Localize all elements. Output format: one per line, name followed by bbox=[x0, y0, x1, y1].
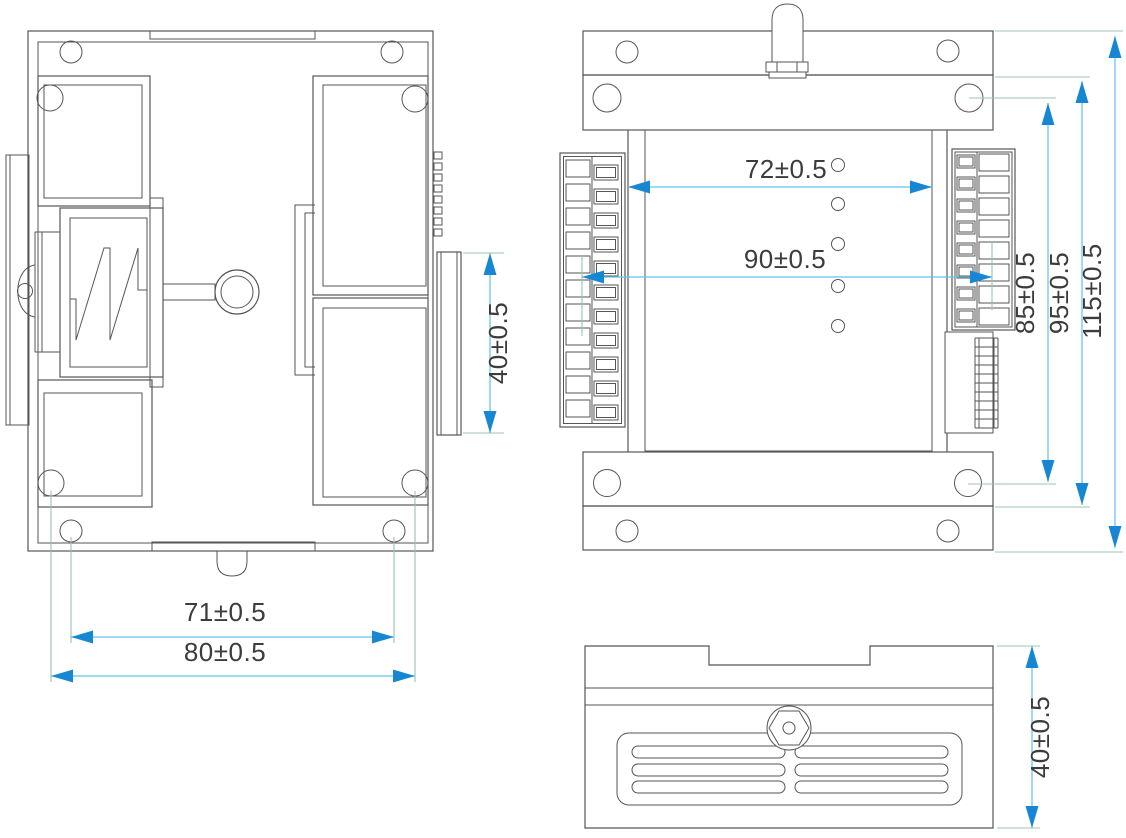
dim-label-72: 72±0.5 bbox=[745, 154, 827, 184]
drawing-page: 71±0.5 80±0.5 40±0.5 72±0.5 90±0.5 85±0.… bbox=[0, 0, 1126, 838]
side-connector bbox=[437, 252, 461, 435]
screw-hole bbox=[594, 470, 621, 497]
knob-stem bbox=[163, 284, 215, 300]
mount-hole bbox=[616, 520, 638, 542]
knob-ring bbox=[215, 270, 259, 314]
dip-connector bbox=[945, 332, 998, 433]
side-view bbox=[6, 31, 461, 576]
bottom-latch-bump bbox=[217, 551, 247, 576]
dimension-terminal-span: 90±0.5 bbox=[582, 243, 992, 336]
mount-hole bbox=[937, 40, 959, 62]
dim-label-85: 85±0.5 bbox=[1010, 252, 1040, 334]
dim-label-71: 71±0.5 bbox=[184, 597, 266, 627]
top-rail-tab bbox=[150, 31, 315, 39]
dim-label-40-bottom: 40±0.5 bbox=[1025, 696, 1055, 778]
mount-hole bbox=[616, 41, 638, 63]
screw-hole bbox=[60, 41, 82, 63]
dimension-connector-height: 40±0.5 bbox=[463, 253, 513, 433]
top-bar bbox=[583, 75, 993, 130]
edge-fins bbox=[434, 152, 442, 236]
screw-hole bbox=[593, 84, 621, 112]
latch-ear-hole bbox=[18, 284, 33, 299]
left-terminal-block bbox=[560, 153, 625, 427]
led-indicators bbox=[832, 159, 845, 333]
dim-label-40-side: 40±0.5 bbox=[483, 302, 513, 384]
right-terminal-block bbox=[952, 149, 1015, 330]
dim-label-115: 115±0.5 bbox=[1077, 243, 1107, 338]
bottom-flange bbox=[583, 452, 993, 506]
mount-hole bbox=[937, 520, 959, 542]
dim-label-95: 95±0.5 bbox=[1044, 252, 1074, 334]
vent-slots bbox=[632, 746, 948, 793]
dim-label-80: 80±0.5 bbox=[184, 637, 266, 667]
dimension-overall-width: 80±0.5 bbox=[51, 491, 415, 683]
dimension-depth: 40±0.5 bbox=[997, 646, 1055, 828]
bottom-bar bbox=[583, 506, 993, 550]
dim-label-90: 90±0.5 bbox=[744, 244, 826, 274]
dimension-screw-span: 71±0.5 bbox=[71, 537, 394, 644]
bottom-view bbox=[585, 646, 993, 828]
dimension-body-width: 72±0.5 bbox=[628, 154, 932, 194]
screw-hole bbox=[955, 470, 982, 497]
technical-drawing: 71±0.5 80±0.5 40±0.5 72±0.5 90±0.5 85±0.… bbox=[0, 0, 1126, 838]
antenna-connector-nut bbox=[767, 706, 811, 750]
screw-hole bbox=[381, 41, 403, 63]
din-latch bbox=[18, 198, 164, 387]
antenna bbox=[766, 4, 808, 78]
